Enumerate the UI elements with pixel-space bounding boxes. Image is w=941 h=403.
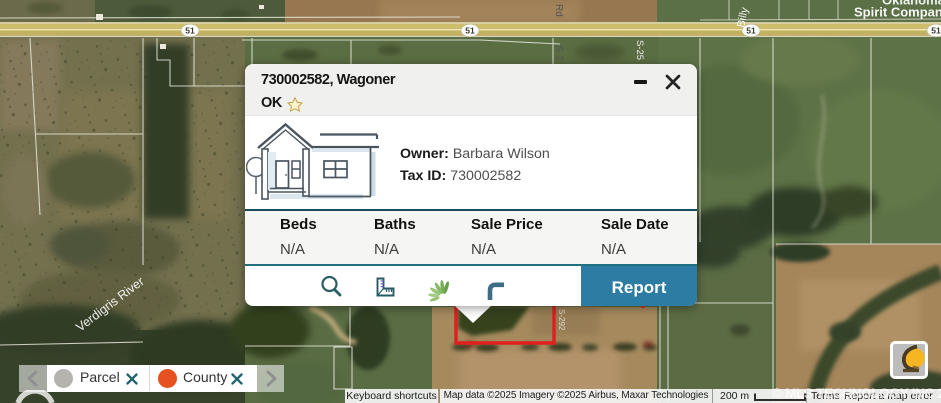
svg-text:51: 51 <box>465 26 475 36</box>
svg-text:S-2: S-2 <box>553 45 564 61</box>
svg-text:Rd: Rd <box>553 4 564 17</box>
svg-text:51: 51 <box>746 26 756 36</box>
svg-text:S-292: S-292 <box>557 309 566 331</box>
svg-text:51: 51 <box>931 26 941 36</box>
svg-text:S-25: S-25 <box>634 40 645 60</box>
svg-text:51: 51 <box>185 26 195 36</box>
svg-text:Oklahoma: Oklahoma <box>882 0 941 8</box>
